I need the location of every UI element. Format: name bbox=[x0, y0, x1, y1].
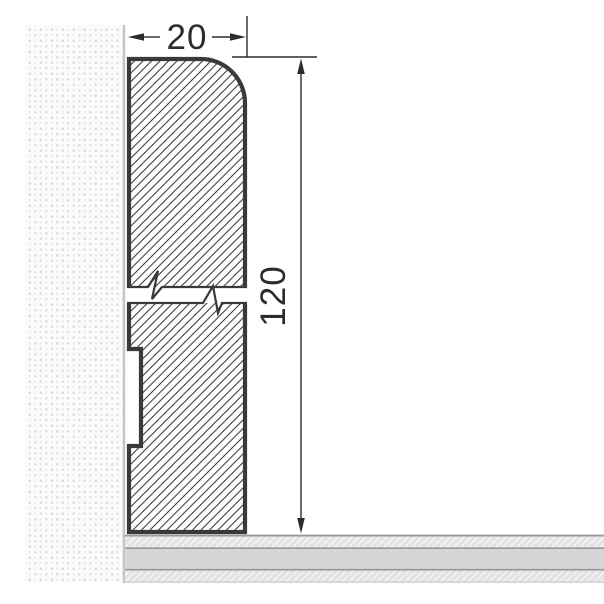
dim-height-arrow-top bbox=[297, 59, 305, 75]
floor bbox=[125, 535, 604, 583]
floor-divider-line-2 bbox=[125, 569, 604, 571]
wall-texture bbox=[25, 25, 123, 583]
dim-width-arrow-left bbox=[128, 33, 144, 41]
skirting-profile-drawing: 20 120 bbox=[0, 0, 604, 604]
floor-bottom-line bbox=[125, 582, 604, 583]
wall-edge-line bbox=[123, 25, 125, 583]
floor-layer-middle-band bbox=[125, 549, 604, 569]
skirting-lower-section bbox=[129, 303, 245, 532]
skirting-upper-section bbox=[129, 59, 245, 288]
floor-divider-line-1 bbox=[125, 547, 604, 549]
wall bbox=[25, 25, 125, 583]
technical-drawing-page: 20 120 bbox=[0, 0, 604, 604]
dim-height-arrow-bottom bbox=[297, 518, 305, 534]
dim-width-arrow-right bbox=[230, 33, 246, 41]
dimension-width: 20 bbox=[128, 16, 247, 57]
floor-top-line bbox=[125, 535, 604, 537]
dim-height-label: 120 bbox=[254, 265, 293, 326]
floor-layer-bottom-hatch bbox=[125, 571, 604, 582]
floor-layer-top-hatch bbox=[125, 537, 604, 548]
skirting-profile bbox=[127, 59, 247, 532]
dim-width-label: 20 bbox=[167, 18, 208, 57]
